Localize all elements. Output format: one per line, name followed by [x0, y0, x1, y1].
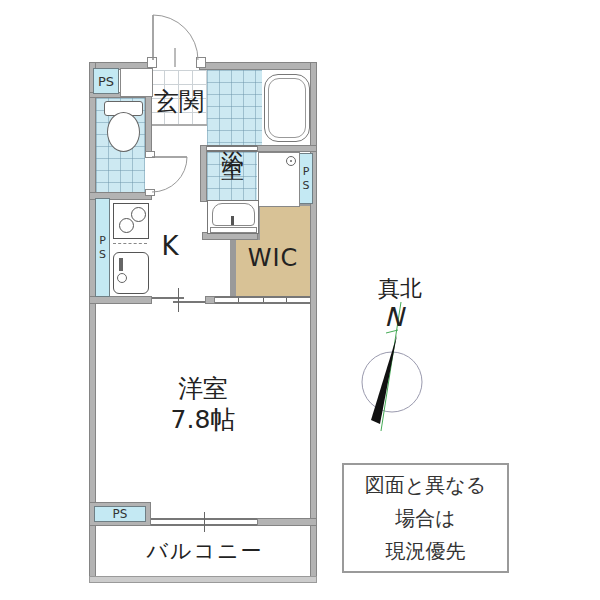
wic-wall-left-lower	[230, 237, 236, 296]
vanity-unit	[207, 200, 259, 234]
door-panel-tick	[238, 298, 239, 302]
disclaimer-line: 現況優先	[386, 535, 466, 568]
floorplan-canvas: PS PS PS PS	[0, 0, 600, 600]
bathtub	[264, 74, 310, 142]
room-label-bathroom: 浴室	[221, 82, 249, 194]
wall-stub-closet	[205, 296, 215, 304]
compass-needle-icon	[371, 335, 397, 424]
sink-drain-icon	[117, 273, 127, 283]
wic-floor-upper	[260, 206, 310, 240]
closet-sliding-doors	[215, 296, 310, 304]
ps-label: PS	[96, 234, 109, 262]
stove	[113, 203, 149, 239]
washing-machine-pan	[258, 152, 300, 207]
room-size-western-room: 7.8帖	[153, 403, 253, 436]
entrance-door-jamb	[196, 57, 206, 68]
disclaimer-line: 図面と異なる	[365, 469, 486, 502]
balcony-rail	[89, 576, 317, 583]
ps-label: PS	[98, 74, 114, 89]
faucet-icon	[231, 216, 234, 225]
vanity-base	[210, 227, 257, 233]
wall-kitchen-bottom	[89, 296, 152, 304]
door-panel-tick	[263, 298, 264, 302]
drain-icon	[286, 156, 296, 166]
toilet-door-swing-arc	[152, 157, 187, 192]
toilet-door-jamb	[145, 151, 155, 158]
room-label-balcony: バルコニー	[125, 537, 285, 565]
ps-strip-right: PS	[299, 153, 313, 204]
disclaimer-line: 場合は	[395, 502, 455, 535]
ps-label: PS	[113, 507, 128, 521]
disclaimer-box: 図面と異なる 場合は 現況優先	[342, 463, 509, 573]
wall-top-right	[199, 62, 317, 70]
compass-circle	[362, 352, 422, 412]
sink-faucet-icon	[119, 258, 123, 271]
kitchen-sink	[113, 252, 149, 294]
ps-strip-kitchen: PS	[95, 198, 110, 297]
door-line	[152, 297, 184, 299]
ps-box-bottom: PS	[94, 506, 146, 522]
ps-box-top-left: PS	[93, 68, 119, 94]
door-panel-tick	[286, 298, 287, 302]
bathtub-inner-rim	[268, 78, 306, 138]
entrance-door-jamb	[147, 57, 157, 68]
room-label-kitchen: K	[155, 231, 185, 261]
wall-hall-washroom	[200, 145, 207, 202]
counter-divider	[113, 243, 147, 244]
drain-dot	[290, 160, 292, 162]
toilet-door-jamb	[145, 189, 155, 196]
compass-true-north-label: 真北	[370, 274, 430, 304]
door-center-tick	[178, 288, 179, 312]
ps-label: PS	[300, 165, 313, 193]
room-label-genkan: 玄関	[140, 85, 218, 118]
window-center-tick	[204, 512, 205, 532]
toilet-bowl	[107, 112, 140, 152]
burner-icon	[131, 207, 146, 222]
burner-icon	[119, 218, 134, 233]
room-label-wic: WIC	[243, 244, 303, 272]
wall-bath-bottom	[257, 145, 317, 152]
compass-n-label: N	[379, 302, 409, 332]
wall-room-bottom-right	[257, 518, 317, 526]
wall-right	[310, 62, 317, 583]
entrance-door-swing-arc	[153, 15, 198, 60]
room-label-western-room: 洋室	[153, 372, 253, 405]
